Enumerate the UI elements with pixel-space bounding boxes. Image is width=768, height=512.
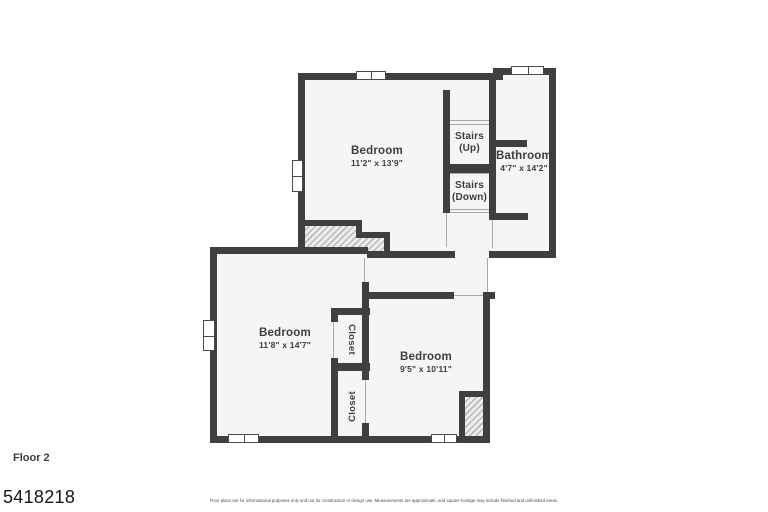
room-label-closet-lower: Closet bbox=[340, 382, 364, 430]
floor-label: Floor 2 bbox=[13, 452, 50, 464]
room-name: Closet bbox=[346, 324, 357, 355]
opening-line bbox=[449, 124, 490, 125]
room-name: Stairs bbox=[439, 180, 500, 192]
room-label-bedroom-lower-left: Bedroom 11'8" x 14'7" bbox=[225, 327, 345, 351]
wall-segment bbox=[367, 251, 455, 258]
window-marker bbox=[356, 71, 386, 80]
room-name: Bedroom bbox=[317, 145, 437, 158]
wall-segment bbox=[489, 251, 556, 258]
window-divider bbox=[371, 72, 372, 79]
window-divider bbox=[244, 435, 245, 442]
room-label-bedroom-upper: Bedroom 11'2" x 13'9" bbox=[317, 145, 437, 169]
room-dimensions: 4'7" x 14'2" bbox=[464, 163, 584, 174]
wall-segment bbox=[362, 292, 454, 299]
wall-segment bbox=[331, 371, 338, 443]
window-marker bbox=[511, 66, 544, 75]
window-divider bbox=[528, 67, 529, 74]
room-name: Bedroom bbox=[366, 351, 486, 364]
wall-segment bbox=[384, 232, 390, 258]
window-marker bbox=[292, 160, 303, 192]
room-label-bedroom-lower-right: Bedroom 9'5" x 10'11" bbox=[366, 351, 486, 375]
room-label-bathroom: Bathroom 4'7" x 14'2" bbox=[464, 150, 584, 174]
wall-segment bbox=[331, 363, 370, 371]
opening-line bbox=[492, 220, 493, 248]
floor-plan-drawing bbox=[0, 0, 768, 512]
opening-line bbox=[449, 209, 490, 210]
room-dimensions: 11'8" x 14'7" bbox=[225, 340, 345, 351]
room-name: Bedroom bbox=[225, 327, 345, 340]
hatched-void-area bbox=[465, 397, 484, 437]
wall-segment bbox=[489, 213, 528, 220]
window-divider bbox=[293, 176, 302, 177]
room-direction: (Down) bbox=[439, 192, 500, 204]
floor-plan-page: Bedroom 11'2" x 13'9" Stairs (Up) Stairs… bbox=[0, 0, 768, 512]
opening-line bbox=[364, 258, 365, 282]
disclaimer: Floor plans are for informational purpos… bbox=[0, 493, 768, 511]
window-divider bbox=[204, 336, 214, 337]
room-name: Bathroom bbox=[464, 150, 584, 163]
window-marker bbox=[203, 320, 215, 351]
room-dimensions: 9'5" x 10'11" bbox=[366, 364, 486, 375]
opening-line bbox=[487, 258, 488, 293]
room-label-closet-upper: Closet bbox=[339, 316, 363, 362]
room-dimensions: 11'2" x 13'9" bbox=[317, 158, 437, 169]
wall-segment bbox=[331, 308, 338, 322]
window-divider bbox=[444, 435, 445, 442]
window-marker bbox=[228, 434, 259, 443]
wall-segment bbox=[210, 247, 368, 254]
disclaimer-text: Floor plans are for informational purpos… bbox=[210, 498, 558, 503]
room-name: Closet bbox=[347, 391, 358, 422]
wall-segment bbox=[459, 391, 490, 397]
opening-line bbox=[446, 213, 447, 247]
opening-line bbox=[365, 380, 366, 423]
window-marker bbox=[431, 434, 457, 443]
wall-segment bbox=[298, 220, 362, 226]
wall-segment bbox=[459, 391, 465, 443]
opening-line bbox=[454, 295, 483, 296]
room-label-stairs-down: Stairs (Down) bbox=[439, 180, 500, 204]
room-name: Stairs bbox=[439, 131, 500, 143]
wall-segment bbox=[298, 73, 493, 80]
